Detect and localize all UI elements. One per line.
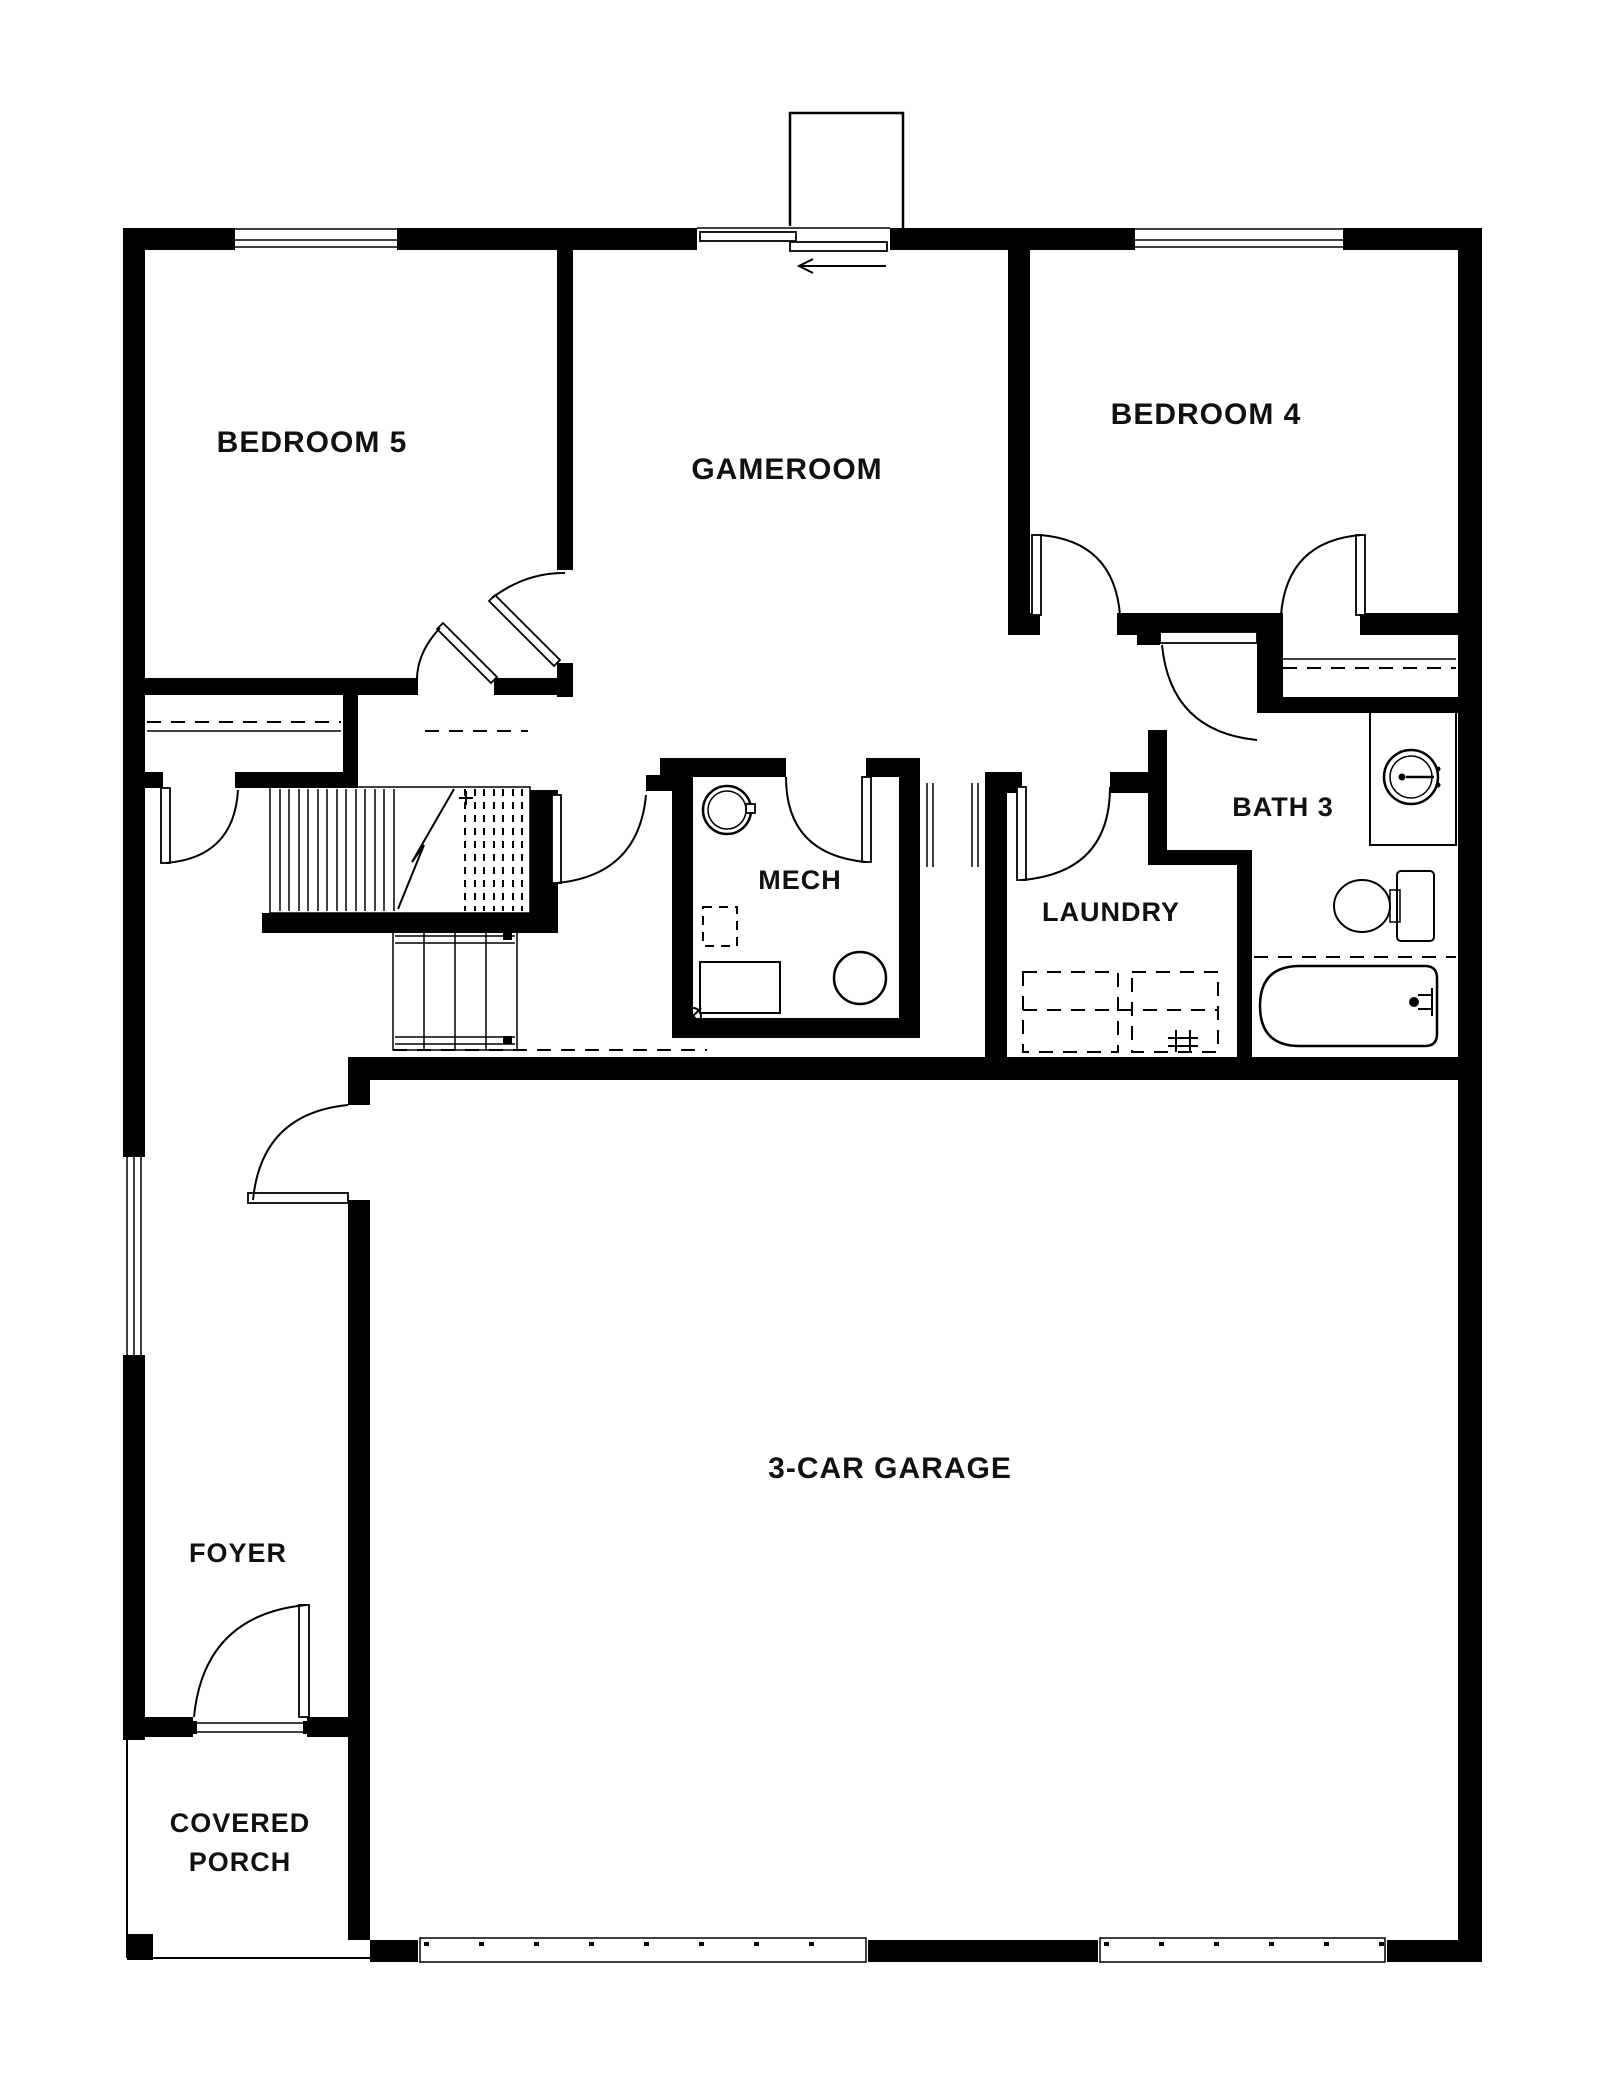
stairs-upper-run [270,787,530,913]
laundry-hookup-icon [1168,1030,1198,1052]
washer-icon [1023,972,1118,1052]
cased-opening-lines [927,783,978,867]
room-label-bedroom4: BEDROOM 4 [1111,398,1302,431]
laundry-door [1017,787,1110,880]
gameroom-hall-door [489,573,565,666]
toilet-icon [1334,871,1434,941]
room-label-covered-porch-line2: PORCH [189,1847,292,1877]
bedroom4-closet-door [1281,535,1365,615]
interior-walls [143,250,1458,1940]
bedroom5-door [417,623,497,684]
room-label-bedroom5: BEDROOM 5 [217,426,408,459]
front-entry-door [188,1605,312,1734]
garage-door-2 [1098,1936,1387,1964]
room-label-bath3: BATH 3 [1232,792,1334,822]
equipment-rectangle-icon [700,962,780,1013]
sliding-door-arrow-icon [799,259,886,273]
bedroom4-entry-door [1032,535,1120,615]
bedroom4-window [1135,226,1343,252]
garage-foyer-door [248,1105,348,1203]
room-label-gameroom: GAMEROOM [691,453,882,486]
room-label-mech: MECH [758,865,842,895]
room-label-laundry: LAUNDRY [1042,897,1180,927]
room-label-garage: 3-CAR GARAGE [768,1452,1012,1485]
floor-plan-drawing: BEDROOM 5 GAMEROOM BEDROOM 4 BATH 3 MECH… [0,0,1607,2080]
vanity-sink-icon [1370,710,1456,845]
garage-door-1 [418,1936,868,1964]
equipment-circle-icon [834,952,886,1004]
hall-closet-door [161,788,238,863]
understair-corridor-door [552,795,646,883]
stair-plus-mark [459,791,473,805]
hvac-dashed-square-icon [703,907,737,946]
sliding-door [697,226,890,252]
stair-break-line [398,789,454,909]
floor-plan-page: BEDROOM 5 GAMEROOM BEDROOM 4 BATH 3 MECH… [0,0,1607,2080]
stairs-lower-run [393,930,517,1050]
bedroom5-window [235,226,397,252]
exterior-walls [123,228,1482,1962]
porch-post [127,1934,153,1960]
mech-door [786,777,871,862]
chimney-outline [790,113,903,230]
room-label-foyer: FOYER [189,1538,287,1568]
bathtub-icon [1254,957,1456,1046]
foyer-side-window [121,1157,147,1355]
bath3-door [1160,632,1257,740]
room-label-covered-porch-line1: COVERED [170,1808,311,1838]
